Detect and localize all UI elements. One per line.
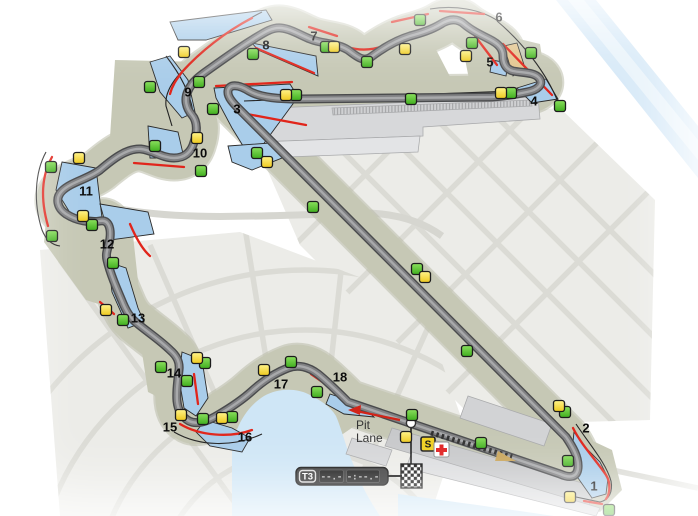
marshal-post-green — [526, 48, 537, 59]
marshal-post-yellow — [101, 305, 112, 316]
marshal-post-yellow — [281, 90, 292, 101]
marshal-post-green — [604, 505, 615, 516]
checkered-flag-icon — [401, 464, 422, 488]
marshal-post-yellow — [461, 51, 472, 62]
corner-label-11: 11 — [79, 184, 93, 199]
corner-label-18: 18 — [333, 370, 347, 385]
marshal-post-green — [555, 101, 566, 112]
pit-lane-label-line2: Lane — [356, 431, 383, 445]
corner-label-8: 8 — [262, 38, 269, 53]
marshal-post-yellow — [78, 211, 89, 222]
corner-label-14: 14 — [167, 366, 182, 381]
marshal-post-green — [108, 258, 119, 269]
marshal-post-green — [286, 357, 297, 368]
start-light-badge: S — [421, 437, 435, 451]
marshal-post-green — [198, 414, 209, 425]
corner-label-6: 6 — [495, 10, 502, 25]
start-light-label: S — [425, 440, 432, 451]
marshal-post-yellow — [554, 401, 565, 412]
marshal-post-green — [208, 104, 219, 115]
sector-label: T3 — [302, 472, 313, 483]
marshal-post-green — [118, 315, 129, 326]
marshal-post-yellow — [259, 365, 270, 376]
marshal-post-yellow — [262, 157, 273, 168]
marshal-post-green — [252, 148, 263, 159]
marshal-post-green — [248, 49, 259, 60]
sector-time-short: --.- — [321, 473, 343, 483]
marshal-post-green — [415, 15, 426, 26]
corner-label-5: 5 — [486, 55, 493, 70]
marshal-post-yellow — [401, 432, 412, 443]
corner-label-17: 17 — [274, 377, 288, 392]
marshal-post-green — [46, 162, 57, 173]
marshal-post-yellow — [565, 492, 576, 503]
marshal-post-green — [406, 94, 417, 105]
marshal-post-yellow — [496, 88, 507, 99]
marshal-post-yellow — [420, 272, 431, 283]
marshal-post-green — [194, 77, 205, 88]
corner-label-13: 13 — [131, 311, 145, 326]
corner-label-15: 15 — [163, 420, 177, 435]
marshal-post-yellow — [217, 413, 228, 424]
corner-label-2: 2 — [582, 421, 589, 436]
marshal-post-green — [308, 202, 319, 213]
marshal-post-green — [196, 166, 207, 177]
marshal-post-green — [182, 376, 193, 387]
marshal-post-yellow — [329, 42, 340, 53]
corner-label-16: 16 — [238, 430, 252, 445]
timing-widget: T3 --.- -:--.- — [296, 468, 402, 486]
marshal-post-green — [47, 231, 58, 242]
corner-label-9: 9 — [184, 85, 191, 100]
marshal-post-yellow — [192, 133, 203, 144]
marshal-post-green — [312, 387, 323, 398]
marshal-post-green — [563, 456, 574, 467]
circuit-map: S Pit Lane T3 --.- -:--.- 12345678910111… — [0, 0, 698, 516]
corner-label-7: 7 — [310, 29, 317, 44]
corner-label-10: 10 — [193, 146, 207, 161]
marshal-post-green — [407, 410, 418, 421]
marshal-post-green — [145, 82, 156, 93]
corner-label-12: 12 — [100, 237, 114, 252]
marshal-post-yellow — [400, 44, 411, 55]
marshal-post-green — [156, 362, 167, 373]
sector-time-long: -:--.- — [347, 473, 380, 483]
corner-label-1: 1 — [590, 479, 597, 494]
corner-label-3: 3 — [233, 102, 240, 117]
marshal-post-green — [362, 57, 373, 68]
marshal-post-green — [462, 346, 473, 357]
marshal-post-green — [476, 438, 487, 449]
marshal-post-yellow — [179, 47, 190, 58]
medical-cross-badge — [434, 442, 449, 457]
pit-lane-label-line1: Pit — [356, 418, 371, 432]
corner-label-4: 4 — [530, 94, 538, 109]
marshal-post-yellow — [74, 153, 85, 164]
marshal-post-yellow — [192, 353, 203, 364]
marshal-post-green — [150, 141, 161, 152]
marshal-post-green — [467, 38, 478, 49]
